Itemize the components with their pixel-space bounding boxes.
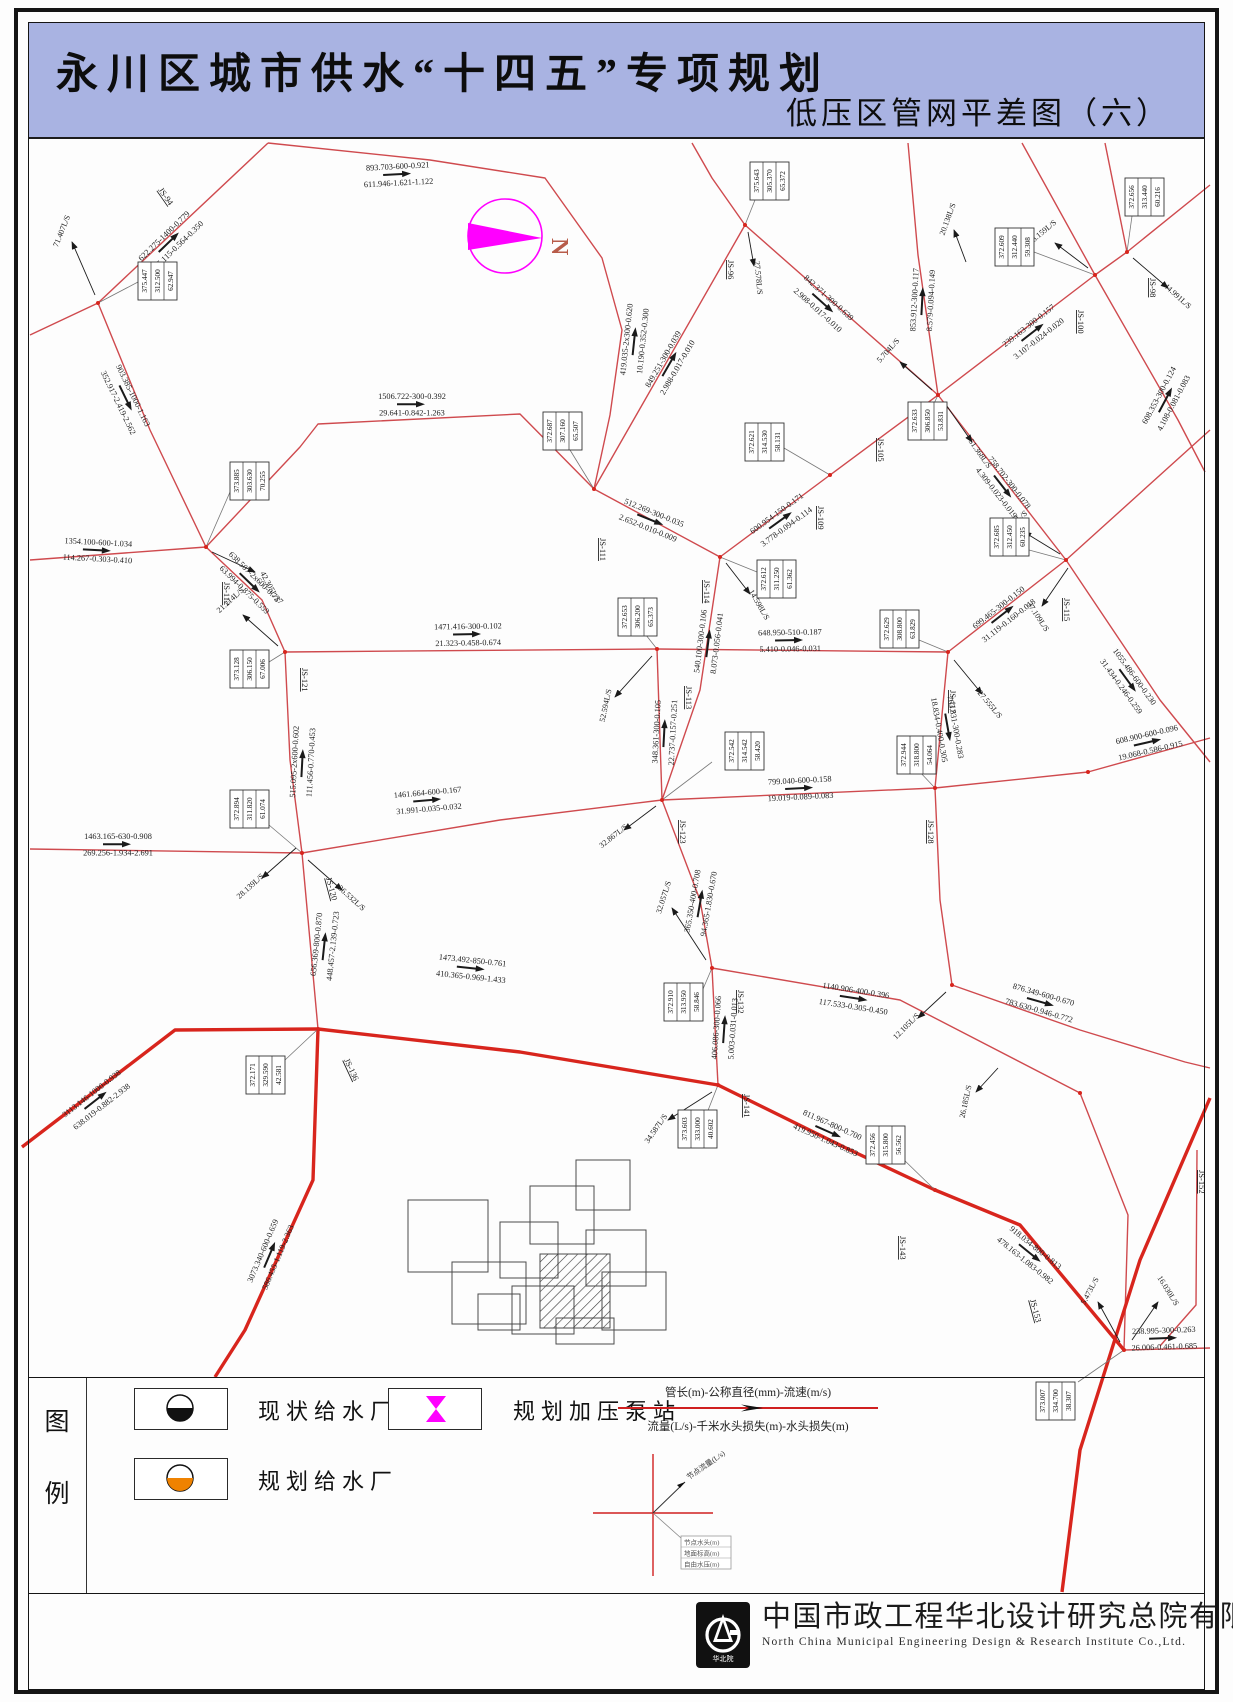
node-box-value: 40.602 bbox=[707, 1119, 715, 1139]
north-arrow-icon: N bbox=[468, 199, 572, 273]
node-box-value: 372.609 bbox=[998, 235, 1006, 259]
demand-arrow bbox=[976, 1068, 998, 1092]
leader-line bbox=[570, 450, 594, 489]
node-box-value: 373.128 bbox=[233, 657, 241, 681]
building bbox=[478, 1294, 520, 1330]
pipe-label: 365.350-400-0.70894.365-1.830-0.670 bbox=[682, 868, 719, 937]
demand-label: 12.105L/S bbox=[891, 1011, 921, 1041]
demand-arrow bbox=[615, 656, 652, 697]
node-box: 373.885303.63070.255 bbox=[230, 462, 269, 500]
planned-plant-label: 规划给水厂 bbox=[258, 1464, 398, 1496]
pipe-edge bbox=[1105, 143, 1127, 252]
pipe-label-top: 648.950-510-0.187 bbox=[758, 627, 822, 637]
pipe-label: 648.950-510-0.1875.410-0.046-0.031 bbox=[758, 627, 822, 654]
node-box: 375.447312.50062.947 bbox=[138, 262, 177, 300]
node-box-value: 372.633 bbox=[911, 409, 919, 433]
node-box: 372.629308.80063.829 bbox=[880, 610, 919, 648]
node-box-value: 62.947 bbox=[167, 271, 175, 291]
demand-label: 32.057L/S bbox=[654, 880, 673, 915]
node-id-label: JS-136 bbox=[342, 1057, 361, 1083]
pipe-label-bottom: 114.267-0.303-0.410 bbox=[62, 553, 132, 566]
pipe-label: 918.034-800-0.813478.163-1.083-0.982 bbox=[995, 1222, 1065, 1286]
node-box: 375.643305.37065.372 bbox=[750, 162, 789, 200]
pipe-label: 239.163-300-0.1573.107-0.024-0.020 bbox=[1001, 303, 1067, 362]
demand-arrow bbox=[624, 806, 656, 830]
node-box-value: 372.621 bbox=[748, 430, 756, 454]
pipe-label-bottom: 21.323-0.458-0.674 bbox=[435, 638, 502, 648]
node-box: 372.171329.59042.581 bbox=[246, 1056, 285, 1094]
junction-dot bbox=[1086, 770, 1090, 774]
existing-plant-label: 现状给水厂 bbox=[258, 1394, 398, 1426]
node-box-value: 308.800 bbox=[896, 617, 904, 641]
pipe-edge bbox=[952, 985, 1210, 1068]
pipe-label-bottom: 8.073-0.056-0.041 bbox=[709, 612, 725, 674]
pipe-label-top: 893.703-600-0.921 bbox=[366, 160, 430, 172]
node-id-label: JS-117 bbox=[948, 690, 958, 713]
node-box-value: 67.006 bbox=[259, 659, 267, 679]
pipe-label: 842.371-300-0.6392.908-0.017-0.010 bbox=[791, 273, 855, 335]
company-logo-icon: 华北院 bbox=[696, 1602, 750, 1668]
node-box-value: 311.820 bbox=[246, 797, 254, 820]
node-box-value: 314.542 bbox=[741, 739, 749, 763]
node-id-label: JS-143 bbox=[898, 1236, 908, 1260]
node-id-label: JS-112 bbox=[222, 582, 232, 605]
pipe-label-top: 656.369-800-0.870 bbox=[309, 912, 325, 976]
pipe-label-top: 1354.100-600-1.034 bbox=[64, 536, 133, 549]
pipe-label-bottom: 269.256-1.934-2.691 bbox=[83, 849, 153, 858]
flow-arrow-icon bbox=[775, 637, 803, 644]
node-box-value: 303.630 bbox=[246, 469, 254, 493]
pipe-label: 1473.492-850-0.761410.365-0.969-1.433 bbox=[436, 952, 508, 985]
demand-label: 32.867L/S bbox=[597, 822, 629, 850]
junction-dot bbox=[743, 223, 747, 227]
pipe-label: 419.035-2x300-0.62010.190-0.352-0.300 bbox=[618, 303, 651, 377]
pipe-label: 1055.486-600-0.23031.434-0.246-0.259 bbox=[1098, 647, 1158, 717]
leader-line bbox=[285, 1029, 318, 1060]
planned-plant-icon bbox=[135, 1459, 226, 1498]
pipe-label: 799.040-600-0.15819.019-0.089-0.083 bbox=[767, 774, 834, 803]
demand-label: 51.368L/S bbox=[967, 437, 994, 470]
node-box-value: 65.373 bbox=[647, 607, 655, 627]
building bbox=[576, 1160, 630, 1210]
pipe-label: 1461.664-600-0.16731.991-0.035-0.032 bbox=[393, 785, 463, 816]
leader-line bbox=[919, 640, 948, 652]
junction-dot bbox=[592, 487, 596, 491]
node-box-value: 70.255 bbox=[259, 471, 267, 491]
company-name-en: North China Municipal Engineering Design… bbox=[762, 1636, 1233, 1648]
node-box: 372.687307.16065.507 bbox=[543, 412, 582, 450]
building bbox=[540, 1254, 610, 1328]
demand-label: 27.578L/S bbox=[753, 261, 765, 295]
drawing-sheet: 永川区城市供水“十四五”专项规划 低压区管网平差图（六） 71.407L/S42… bbox=[0, 0, 1233, 1702]
footer-title-block: 华北院 中国市政工程华北设计研究总院有限公司 North China Munic… bbox=[28, 1593, 1205, 1690]
pipe-label: 853.912-300-0.1178.579-0.094-0.149 bbox=[908, 268, 937, 333]
node-box-value: 307.160 bbox=[559, 419, 567, 443]
node-box-value: 333.000 bbox=[694, 1117, 702, 1141]
node-id-label: JS-94 bbox=[156, 185, 176, 207]
pipe-label: 1463.165-630-0.908269.256-1.934-2.691 bbox=[83, 832, 153, 858]
node-box-value: 318.800 bbox=[913, 743, 921, 767]
pipe-edge bbox=[318, 1029, 718, 1085]
node-id-label: JS-113 bbox=[684, 686, 694, 709]
junction-dot bbox=[300, 851, 304, 855]
node-box-value: 313.440 bbox=[1141, 185, 1149, 209]
junction-dot bbox=[950, 983, 954, 987]
node-box-value: 58.131 bbox=[774, 432, 782, 452]
node-box-value: 313.950 bbox=[680, 990, 688, 1014]
node-box-value: 329.590 bbox=[262, 1063, 270, 1087]
pipe-edge bbox=[1066, 430, 1210, 560]
pipe-label-top: 540.100-300-0.106 bbox=[692, 609, 709, 673]
pipe-edge bbox=[285, 649, 657, 652]
leader-line bbox=[745, 200, 755, 225]
pipe-label: 512.269-300-0.0352.652-0.010-0.009 bbox=[617, 497, 686, 544]
pipe-label-bottom: 117.533-0.305-0.450 bbox=[818, 997, 888, 1017]
north-label: N bbox=[546, 238, 572, 256]
building bbox=[452, 1262, 526, 1324]
pipe-edge bbox=[935, 772, 1088, 788]
demand-label: 36.532L/S bbox=[336, 884, 367, 913]
node-box-value: 314.530 bbox=[761, 430, 769, 454]
planned-pump-symbol-box bbox=[388, 1388, 482, 1430]
pipe-label-top: 238.995-300-0.263 bbox=[1132, 1325, 1196, 1336]
pipe-label: 3073.340-600-0.659586.455-1.119-2.363 bbox=[245, 1217, 296, 1291]
pipe-edge bbox=[935, 788, 952, 985]
node-box-value: 372.656 bbox=[1128, 185, 1136, 209]
pipe-label: 1471.416-300-0.10221.323-0.458-0.674 bbox=[434, 621, 502, 648]
demand-label: 27.555L/S bbox=[976, 689, 1004, 720]
junction-dot bbox=[660, 798, 664, 802]
polygon bbox=[468, 223, 542, 250]
node-id-label: JS-115 bbox=[1062, 598, 1072, 621]
node-box-value: 372.894 bbox=[233, 797, 241, 821]
junction-dot bbox=[283, 650, 287, 654]
flow-arrow-icon bbox=[397, 401, 425, 407]
node-id-label: JS-100 bbox=[1076, 310, 1086, 334]
demand-arrow bbox=[72, 242, 95, 295]
node-box-value: 373.603 bbox=[681, 1117, 689, 1141]
pipe-edge bbox=[935, 1190, 1124, 1350]
pipe-label: 849.251-300-0.0392.988-0.017-0.010 bbox=[643, 329, 697, 397]
planned-plant-symbol-box bbox=[134, 1458, 228, 1500]
demand-arrow bbox=[900, 362, 932, 390]
legend-char-2: 例 bbox=[28, 1474, 86, 1510]
pipe-label-top: 515.095-2x600-0.602 bbox=[288, 726, 301, 798]
pipe-label-bottom: 31.991-0.035-0.032 bbox=[396, 802, 462, 817]
node-box-value: 60.216 bbox=[1154, 187, 1162, 207]
demand-arrow bbox=[954, 230, 966, 262]
node-box-value: 42.581 bbox=[275, 1065, 283, 1085]
leader-line bbox=[784, 448, 830, 475]
demand-label: 44.991L/S bbox=[1162, 282, 1193, 311]
junction-dot bbox=[1078, 1091, 1082, 1095]
node-box-value: 372.910 bbox=[667, 990, 675, 1014]
demand-arrow bbox=[918, 992, 946, 1018]
node-box: 372.542314.54258.420 bbox=[725, 732, 764, 770]
pipe-label-top: 799.040-600-0.158 bbox=[768, 774, 832, 786]
planned-pump-station-icon bbox=[389, 1389, 480, 1428]
flow-arrow-icon bbox=[453, 631, 481, 638]
node-box-value: 372.685 bbox=[993, 525, 1001, 549]
svg-text:地面标高(m): 地面标高(m) bbox=[684, 1549, 719, 1558]
node-box-value: 59.308 bbox=[1024, 237, 1032, 257]
leader-line bbox=[720, 557, 757, 572]
pipe-edge bbox=[692, 143, 745, 225]
svg-text:华北院: 华北院 bbox=[713, 1654, 734, 1663]
formula-top-text: 管长(m)-公称直径(mm)-流速(m/s) bbox=[603, 1384, 893, 1400]
junction-dot bbox=[710, 966, 714, 970]
node-id-label: JS-105 bbox=[876, 438, 886, 462]
node-id-label: JS-152 bbox=[1197, 1170, 1207, 1194]
pipe-label-top: 853.912-300-0.117 bbox=[908, 268, 920, 332]
flow-arrow-icon bbox=[103, 841, 131, 847]
leader-line bbox=[662, 762, 712, 800]
pipe-edge bbox=[30, 849, 302, 853]
node-box-value: 312.500 bbox=[154, 269, 162, 293]
node-box: 372.910313.95058.846 bbox=[664, 983, 703, 1021]
demand-label: 26.185L/S bbox=[958, 1084, 974, 1119]
node-box: 372.612311.25061.362 bbox=[757, 560, 796, 598]
node-box-value: 53.831 bbox=[937, 411, 945, 431]
node-flow-label: 节点流量(L/s) bbox=[684, 1448, 727, 1482]
node-box-value: 56.562 bbox=[895, 1135, 903, 1155]
legend-panel: 图 例 现状给水厂 规划加压泵站 规划给水厂 管长(m)-公称直径(mm bbox=[28, 1377, 1205, 1593]
node-box-value: 306.200 bbox=[634, 605, 642, 629]
pipe-label-top: 1506.722-300-0.392 bbox=[378, 392, 446, 401]
junction-dot bbox=[936, 393, 940, 397]
pipe-label: 348.361-300-0.10522.737-0.157-0.251 bbox=[650, 699, 679, 766]
pipe-label: 608.353-300-0.1244.108-0.081-0.083 bbox=[1140, 364, 1193, 433]
junction-dot bbox=[716, 1083, 720, 1087]
pipe-label-bottom: 26.006-0.461-0.685 bbox=[1131, 1341, 1197, 1352]
building bbox=[530, 1186, 594, 1244]
leader-line bbox=[1029, 550, 1066, 560]
junction-dot bbox=[655, 647, 659, 651]
pipe-label: 811.967-800-0.700419.950-1.043-0.853 bbox=[792, 1107, 866, 1159]
pipe-label: 903.385-1000-1.163352.917-2.419-2.562 bbox=[99, 362, 153, 436]
node-id-label: JS-111 bbox=[598, 538, 608, 561]
node-box: 373.128306.15067.006 bbox=[230, 650, 269, 688]
demand-arrow bbox=[243, 615, 278, 646]
node-id-label: JS-121 bbox=[300, 668, 310, 692]
junction-dot bbox=[1122, 1348, 1126, 1352]
svg-text:自由水压(m): 自由水压(m) bbox=[684, 1560, 719, 1569]
node-id-label: JS-98 bbox=[1148, 278, 1158, 297]
node-box-value: 312.450 bbox=[1006, 525, 1014, 549]
node-box: 372.633306.85053.831 bbox=[908, 402, 947, 440]
pipe-label-bottom: 611.946-1.621-1.122 bbox=[364, 177, 434, 190]
node-id-label: JS-141 bbox=[742, 1094, 752, 1118]
flow-arrow-icon bbox=[1149, 1335, 1177, 1342]
leader-line bbox=[1034, 252, 1095, 275]
node-box-value: 372.629 bbox=[883, 617, 891, 641]
junction-dot bbox=[204, 545, 208, 549]
node-box-value: 58.420 bbox=[754, 741, 762, 761]
pipe-label: 608.900-600-0.09619.068-0.586-0.915 bbox=[1114, 723, 1184, 763]
pipe-label: 1354.100-600-1.034114.267-0.303-0.410 bbox=[62, 536, 133, 565]
node-id-label: JS-96 bbox=[726, 260, 736, 279]
node-box-value: 373.885 bbox=[233, 469, 241, 493]
pipe-label-bottom: 5.410-0.046-0.031 bbox=[759, 644, 821, 654]
leader-line bbox=[902, 1158, 935, 1190]
leader-line bbox=[269, 652, 285, 662]
pipe-edge bbox=[1080, 1093, 1128, 1350]
pipe-label-top: 1461.664-600-0.167 bbox=[393, 785, 461, 800]
pipe-edge bbox=[1160, 1150, 1197, 1346]
node-box-value: 58.846 bbox=[693, 992, 701, 1012]
node-box-value: 372.456 bbox=[869, 1133, 877, 1157]
node-id-label: JS-128 bbox=[926, 820, 936, 844]
junction-dot bbox=[1125, 250, 1129, 254]
node-id-label: JS-120 bbox=[324, 876, 340, 901]
node-id-label: JS-123 bbox=[678, 820, 688, 844]
node-box: 372.456315.80056.562 bbox=[866, 1126, 905, 1164]
node-box-value: 61.074 bbox=[259, 799, 267, 819]
pipe-edge bbox=[30, 303, 98, 335]
junction-dot bbox=[946, 650, 950, 654]
legend-label-column: 图 例 bbox=[28, 1378, 87, 1593]
pipe-label: 540.100-300-0.1068.073-0.056-0.041 bbox=[692, 609, 725, 675]
pipe-label-top: 1471.416-300-0.102 bbox=[434, 621, 502, 631]
pipe-label: 3113.146-1000-0.938638.019-0.882-2.938 bbox=[61, 1068, 133, 1132]
pipe-label: 876.349-600-0.670783.630-0.946-0.772 bbox=[1004, 981, 1078, 1025]
node-example-diagram: 节点流量(L/s) 节点水头(m) 地面标高(m) 自由水压(m) bbox=[573, 1436, 823, 1586]
node-box-value: 65.372 bbox=[779, 171, 787, 191]
node-box: 372.609312.44059.308 bbox=[995, 228, 1034, 266]
junction-dot bbox=[828, 473, 832, 477]
pipe-label: 1140.906-400-0.396117.533-0.305-0.450 bbox=[818, 981, 891, 1017]
node-example-table: 节点水头(m) 地面标高(m) 自由水压(m) bbox=[681, 1536, 731, 1569]
node-box: 372.656313.44060.216 bbox=[1125, 178, 1164, 216]
building bbox=[602, 1272, 666, 1330]
pipe-label-bottom: 111.456-0.770-0.453 bbox=[305, 728, 318, 798]
node-box-value: 372.653 bbox=[621, 605, 629, 629]
node-box: 373.603333.00040.602 bbox=[678, 1110, 717, 1148]
junction-dot bbox=[1064, 558, 1068, 562]
node-box-value: 311.250 bbox=[773, 567, 781, 590]
pipe-label-top: 406.086-300-0.066 bbox=[710, 996, 723, 1060]
leader-line bbox=[98, 282, 138, 303]
junction-dot bbox=[718, 555, 722, 559]
node-box-value: 315.800 bbox=[882, 1133, 890, 1157]
svg-text:节点水头(m): 节点水头(m) bbox=[684, 1538, 719, 1547]
pipe-label-bottom: 410.365-0.969-1.433 bbox=[436, 969, 506, 985]
node-box-value: 306.850 bbox=[924, 409, 932, 433]
demand-label: 52.594L/S bbox=[598, 688, 614, 723]
pipe-label-top: 1463.165-630-0.908 bbox=[84, 832, 152, 841]
pipe-label: 1506.722-300-0.39229.641-0.842-1.263 bbox=[378, 392, 446, 418]
junction-dot bbox=[316, 1027, 320, 1031]
demand-label: 71.407L/S bbox=[51, 214, 72, 248]
legend-char-1: 图 bbox=[28, 1402, 86, 1438]
node-box-value: 61.362 bbox=[786, 569, 794, 589]
node-box-value: 372.612 bbox=[760, 567, 768, 591]
demand-arrow bbox=[944, 402, 972, 442]
pipe-label-top: 1473.492-850-0.761 bbox=[438, 953, 506, 969]
pipe-label: 656.369-800-0.870448.457-2.139-0.723 bbox=[308, 909, 341, 981]
building bbox=[408, 1200, 488, 1272]
existing-plant-symbol-box bbox=[134, 1388, 228, 1430]
pipe-label-bottom: 94.365-1.830-0.670 bbox=[699, 871, 719, 937]
node-box-value: 63.829 bbox=[909, 619, 917, 639]
pipe-label-bottom: 19.019-0.089-0.083 bbox=[768, 791, 834, 803]
node-box-value: 375.447 bbox=[141, 269, 149, 293]
demand-label: 28.139L/S bbox=[235, 872, 266, 901]
pipe-label: 600.954-150-0.1713.778-0.094-0.114 bbox=[748, 491, 814, 549]
pipe-label-bottom: 10.190-0.352-0.300 bbox=[635, 308, 651, 374]
node-box-value: 375.643 bbox=[753, 169, 761, 193]
pipe-label-bottom: 8.579-0.094-0.149 bbox=[925, 270, 937, 332]
junction-dot bbox=[1093, 273, 1097, 277]
leader-line bbox=[206, 492, 230, 547]
company-name-cn: 中国市政工程华北设计研究总院有限公司 bbox=[762, 1602, 1233, 1634]
node-box-value: 372.687 bbox=[546, 419, 554, 443]
junction-dot bbox=[96, 301, 100, 305]
node-box-value: 372.171 bbox=[249, 1063, 257, 1087]
pipe-edge bbox=[98, 303, 206, 547]
node-id-label: JS-153 bbox=[1028, 1298, 1044, 1323]
node-id-label: JS-109 bbox=[816, 506, 826, 530]
node-box-value: 372.542 bbox=[728, 739, 736, 763]
pipe-label: 406.086-300-0.0665.003-0.031-0.013 bbox=[710, 996, 740, 1061]
node-box-value: 60.235 bbox=[1019, 527, 1027, 547]
pipe-label: 699.465-300-0.15031.119-0.160-0.018 bbox=[970, 584, 1037, 644]
leader-line bbox=[1127, 216, 1132, 252]
pipe-label-bottom: 29.641-0.842-1.263 bbox=[379, 409, 445, 418]
node-box: 372.894311.82061.074 bbox=[230, 790, 269, 828]
node-box-value: 305.370 bbox=[766, 169, 774, 193]
pipe-label: 893.703-600-0.921611.946-1.621-1.122 bbox=[363, 160, 434, 189]
demand-label: 5.473L/S bbox=[1079, 1276, 1101, 1306]
node-box-value: 306.150 bbox=[246, 657, 254, 681]
node-box: 372.685312.45060.235 bbox=[990, 518, 1029, 556]
existing-plant-icon bbox=[135, 1389, 226, 1428]
node-box-value: 372.944 bbox=[900, 743, 908, 767]
pipe-label-bottom: 448.457-2.139-0.723 bbox=[325, 911, 341, 981]
node-box-value: 65.507 bbox=[572, 421, 580, 441]
pipe-label: 238.995-300-0.26326.006-0.461-0.685 bbox=[1131, 1325, 1198, 1353]
demand-arrow bbox=[954, 660, 982, 694]
node-box-value: 54.064 bbox=[926, 745, 934, 765]
pipe-annotation-formula: 管长(m)-公称直径(mm)-流速(m/s) 流量(L/s)-千米水头损失(m)… bbox=[603, 1384, 893, 1434]
leader-line bbox=[269, 825, 302, 853]
node-box: 372.944318.80054.064 bbox=[897, 736, 936, 774]
node-box-value: 312.440 bbox=[1011, 235, 1019, 259]
demand-label: 16.030L/S bbox=[1155, 1274, 1180, 1307]
junction-dot bbox=[933, 1188, 937, 1192]
formula-bottom-text: 流量(L/s)-千米水头损失(m)-水头损失(m) bbox=[603, 1418, 893, 1434]
junction-dot bbox=[933, 786, 937, 790]
node-id-label: JS-132 bbox=[736, 990, 746, 1014]
formula-flow-line bbox=[613, 1403, 883, 1413]
pipe-label: 515.095-2x600-0.602111.456-0.770-0.453 bbox=[288, 726, 317, 799]
node-box: 372.621314.53058.131 bbox=[745, 423, 784, 461]
node-box: 372.653306.20065.373 bbox=[618, 598, 657, 636]
node-id-label: JS-114 bbox=[702, 580, 712, 604]
demand-label: 34.587L/S bbox=[643, 1112, 670, 1145]
demand-arrow bbox=[1055, 243, 1088, 268]
